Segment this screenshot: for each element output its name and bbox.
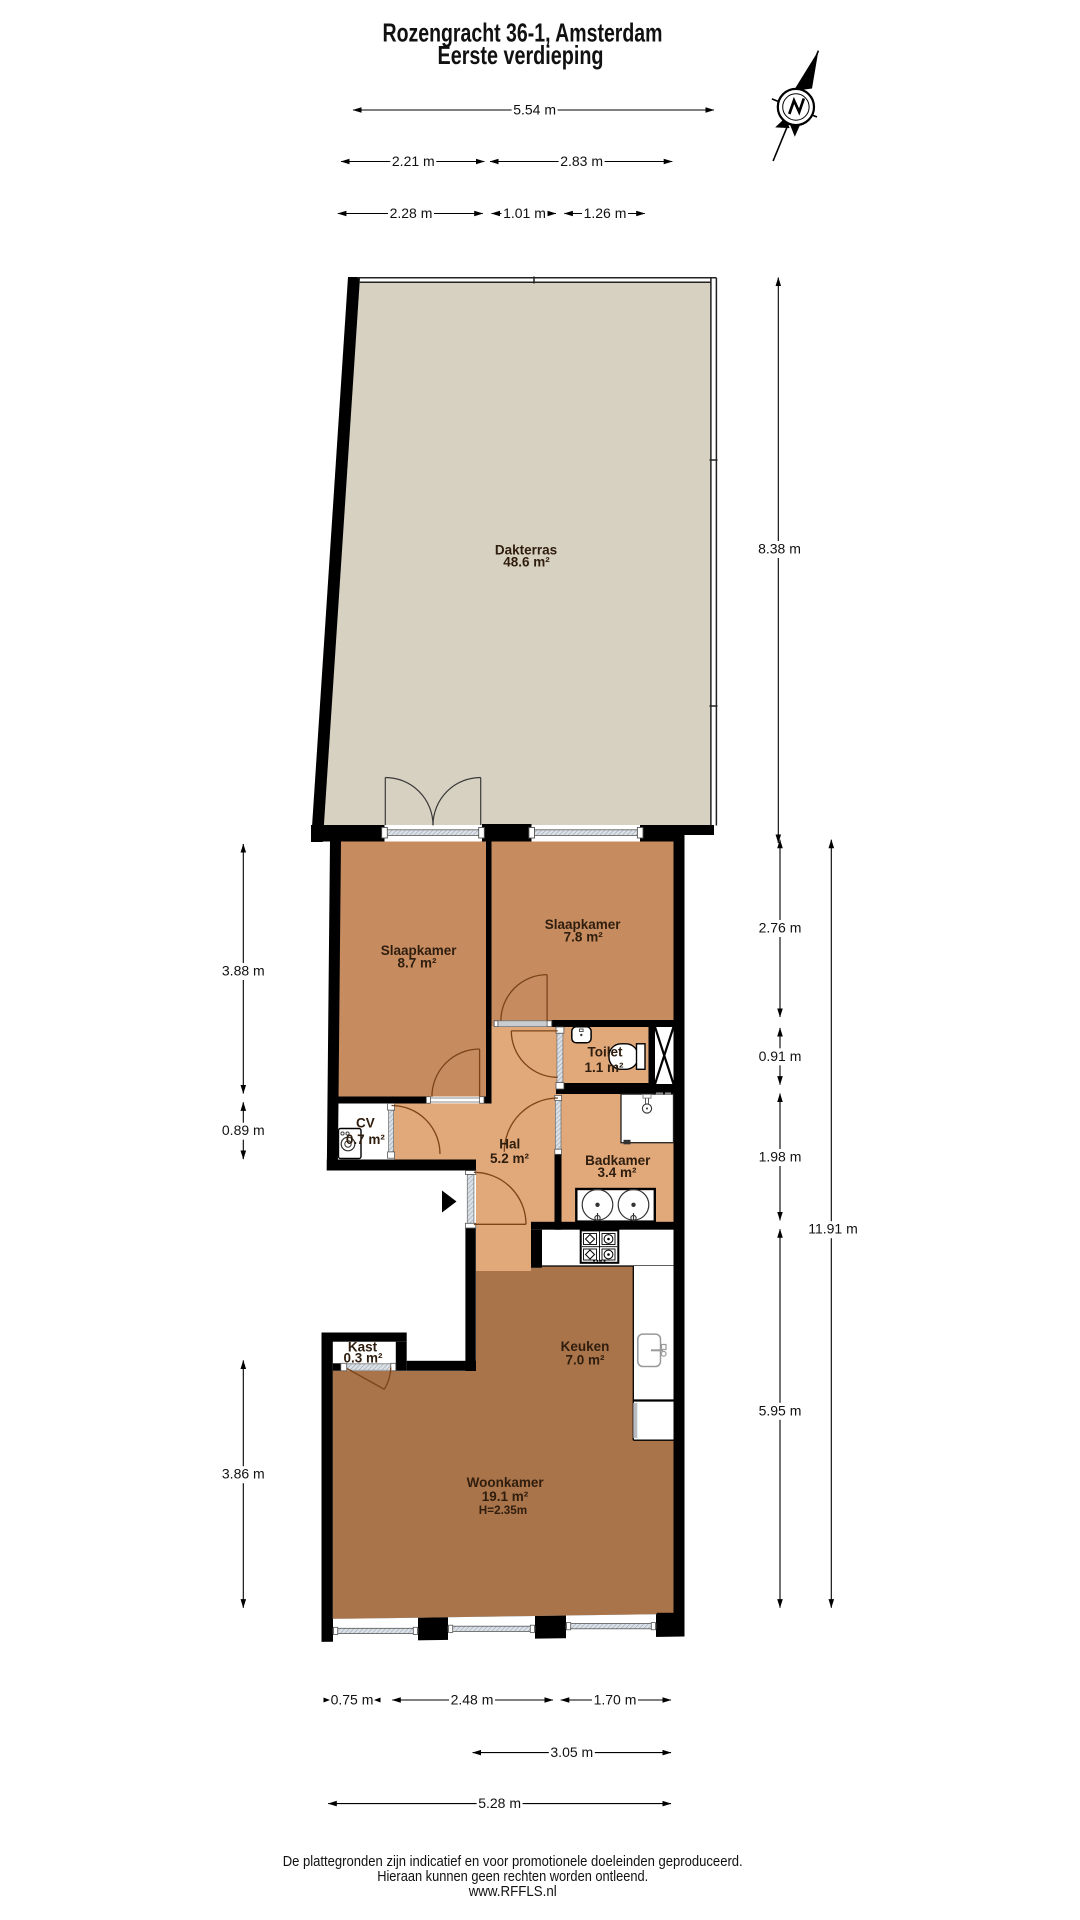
svg-text:0.75 m: 0.75 m xyxy=(331,1692,374,1708)
svg-text:1.01 m: 1.01 m xyxy=(503,205,546,221)
svg-text:1.70 m: 1.70 m xyxy=(594,1692,637,1708)
svg-text:H=2.35m: H=2.35m xyxy=(479,1504,527,1517)
svg-text:1.1 m²: 1.1 m² xyxy=(584,1060,624,1075)
svg-text:www.RFFLS.nl: www.RFFLS.nl xyxy=(468,1883,557,1900)
svg-text:5.54 m: 5.54 m xyxy=(513,102,556,118)
svg-text:2.21 m: 2.21 m xyxy=(392,153,435,169)
svg-text:CV: CV xyxy=(356,1116,375,1131)
svg-text:2.76 m: 2.76 m xyxy=(759,920,802,936)
svg-text:0.7 m²: 0.7 m² xyxy=(346,1132,386,1147)
svg-text:0.89 m: 0.89 m xyxy=(222,1122,265,1138)
svg-text:0.3 m²: 0.3 m² xyxy=(343,1351,383,1366)
svg-text:Woonkamer: Woonkamer xyxy=(467,1475,545,1490)
svg-text:5.28 m: 5.28 m xyxy=(478,1795,521,1811)
svg-text:2.28 m: 2.28 m xyxy=(390,205,433,221)
svg-text:2.48 m: 2.48 m xyxy=(451,1692,494,1708)
svg-text:5.95 m: 5.95 m xyxy=(759,1402,802,1418)
svg-text:2.83 m: 2.83 m xyxy=(560,153,603,169)
svg-text:8.7 m²: 8.7 m² xyxy=(397,956,437,971)
svg-text:Toilet: Toilet xyxy=(588,1045,624,1060)
svg-text:3.86 m: 3.86 m xyxy=(222,1466,265,1482)
svg-text:7.8 m²: 7.8 m² xyxy=(564,930,604,945)
svg-text:1.26 m: 1.26 m xyxy=(584,205,627,221)
svg-text:5.2 m²: 5.2 m² xyxy=(490,1151,530,1166)
svg-text:3.88 m: 3.88 m xyxy=(222,963,265,979)
svg-text:48.6 m²: 48.6 m² xyxy=(503,555,550,570)
svg-text:1.98 m: 1.98 m xyxy=(759,1149,802,1165)
svg-text:3.4 m²: 3.4 m² xyxy=(597,1165,637,1180)
svg-text:7.0 m²: 7.0 m² xyxy=(565,1353,605,1368)
svg-text:Eerste verdieping: Eerste verdieping xyxy=(438,40,604,70)
svg-text:3.05 m: 3.05 m xyxy=(550,1744,593,1760)
svg-text:0.91 m: 0.91 m xyxy=(759,1048,802,1064)
svg-text:8.38 m: 8.38 m xyxy=(758,541,801,557)
svg-text:11.91 m: 11.91 m xyxy=(808,1221,858,1237)
svg-text:Hal: Hal xyxy=(499,1136,520,1151)
svg-text:19.1 m²: 19.1 m² xyxy=(482,1489,529,1504)
